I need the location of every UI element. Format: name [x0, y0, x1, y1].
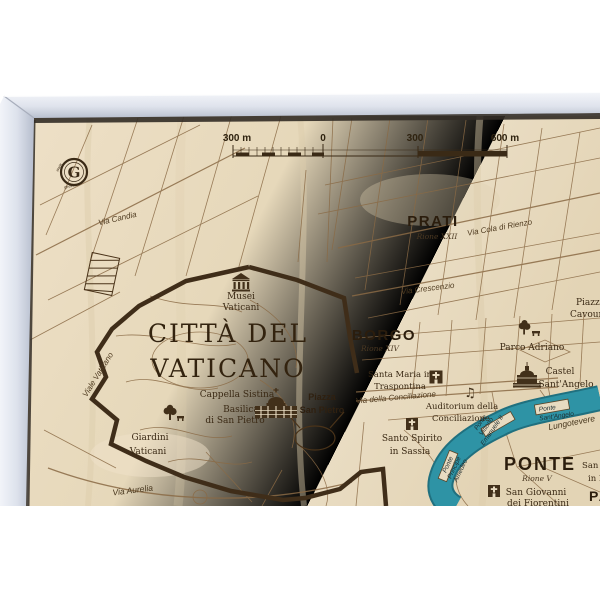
poi-piazza-san-pietro-line2: San Pietro: [300, 405, 345, 415]
poi-giardini-line2: Vaticani: [129, 447, 167, 457]
poi-piazza-cavour-line1: Piazza: [576, 298, 600, 308]
poi-fiorentini-line2: dei Fiorentini: [507, 499, 569, 509]
church-icon-fiorentini: [488, 485, 500, 497]
poi-castel-line1: Castel: [546, 367, 575, 377]
church-icon-santo-spirito: [406, 418, 418, 430]
poi-basilica-line1: Basilica: [223, 405, 259, 415]
poi-auditorium-line1: Auditorium della: [425, 402, 498, 412]
poi-parco-adriano: Parco Adriano: [500, 343, 565, 353]
scale-label-zero: 0: [320, 133, 326, 144]
poi-san-salvatore-line2: in Lauro: [588, 474, 600, 484]
district-parione-truncated: PARIONE: [589, 488, 600, 504]
wooden-map: 300 m 0 300 600 m G www geckoart: [20, 110, 600, 510]
scale-label-300m-right: 300: [407, 133, 424, 144]
district-prati: PRATI: [407, 213, 458, 230]
scale-label-600m: 600 m: [491, 133, 519, 144]
poi-piazza-cavour-line2: Cavour: [570, 310, 600, 320]
poi-traspontina-line2: Traspontina: [374, 382, 426, 392]
map-title-line2: VATICANO: [149, 354, 305, 383]
map-photo-svg: 300 m 0 300 600 m G www geckoart: [0, 0, 600, 600]
poi-santo-spirito-line2: in Sassia: [390, 447, 431, 457]
poi-cappella-sistina: Cappella Sistina: [200, 390, 275, 400]
logo-letter-g: G: [68, 164, 81, 182]
poi-fiorentini-line1: San Giovanni: [506, 488, 567, 498]
map-title-line1: CITTÀ DEL: [148, 319, 308, 348]
poi-traspontina-line1: Santa Maria in: [368, 370, 433, 380]
district-prati-rione: Rione XXII: [416, 232, 459, 241]
district-borgo: BORGO: [352, 327, 416, 344]
poi-castel-line2: Sant'Angelo: [538, 380, 593, 390]
poi-santo-spirito-line1: Santo Spirito: [382, 434, 442, 444]
poi-auditorium-line2: Conciliazione: [432, 414, 490, 424]
district-ponte: PONTE: [504, 454, 576, 474]
district-borgo-rione: Rione XIV: [360, 344, 401, 353]
district-ponte-rione: Rione V: [521, 474, 553, 483]
framed-wooden-map-photo: 300 m 0 300 600 m G www geckoart: [0, 0, 600, 600]
poi-san-salvatore-line1: San Salvatore: [582, 461, 600, 471]
poi-musei-vaticani-line1: Musei: [227, 292, 255, 302]
scale-label-300m-left: 300 m: [223, 133, 251, 144]
poi-giardini-line1: Giardini: [131, 433, 168, 443]
poi-piazza-san-pietro-line1: Piazza: [308, 392, 337, 402]
poi-musei-vaticani-line2: Vaticani: [222, 303, 260, 313]
music-note-icon: ♫: [464, 386, 476, 401]
